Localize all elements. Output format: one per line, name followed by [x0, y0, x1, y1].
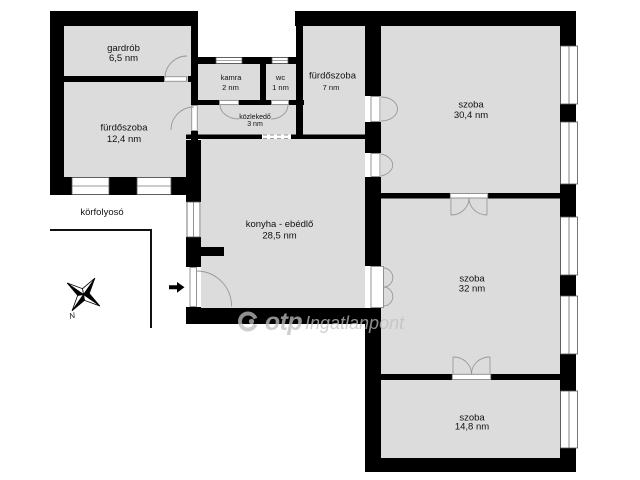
svg-text:fürdőszoba: fürdőszoba: [100, 123, 148, 134]
svg-text:14,8 nm: 14,8 nm: [455, 422, 489, 433]
svg-text:kamra: kamra: [221, 73, 243, 82]
svg-text:szoba: szoba: [458, 100, 484, 111]
svg-text:2 nm: 2 nm: [222, 83, 239, 92]
svg-text:3 nm: 3 nm: [247, 121, 263, 128]
svg-text:28,5 nm: 28,5 nm: [262, 231, 296, 242]
svg-text:12,4 nm: 12,4 nm: [107, 134, 141, 145]
svg-text:Ingatlanpont: Ingatlanpont: [305, 313, 405, 333]
svg-text:6,5 nm: 6,5 nm: [109, 53, 138, 64]
svg-text:fürdőszoba: fürdőszoba: [309, 71, 357, 82]
svg-text:1 nm: 1 nm: [272, 83, 289, 92]
svg-text:konyha - ebédlő: konyha - ebédlő: [246, 219, 314, 230]
svg-text:körfolyosó: körfolyosó: [80, 207, 123, 218]
svg-text:30,4 nm: 30,4 nm: [454, 110, 488, 121]
svg-text:közlekedő: közlekedő: [239, 114, 271, 121]
svg-text:7 nm: 7 nm: [323, 83, 340, 92]
svg-text:wc: wc: [275, 73, 285, 82]
svg-text:32 nm: 32 nm: [459, 284, 485, 295]
svg-text:otp: otp: [265, 308, 303, 336]
